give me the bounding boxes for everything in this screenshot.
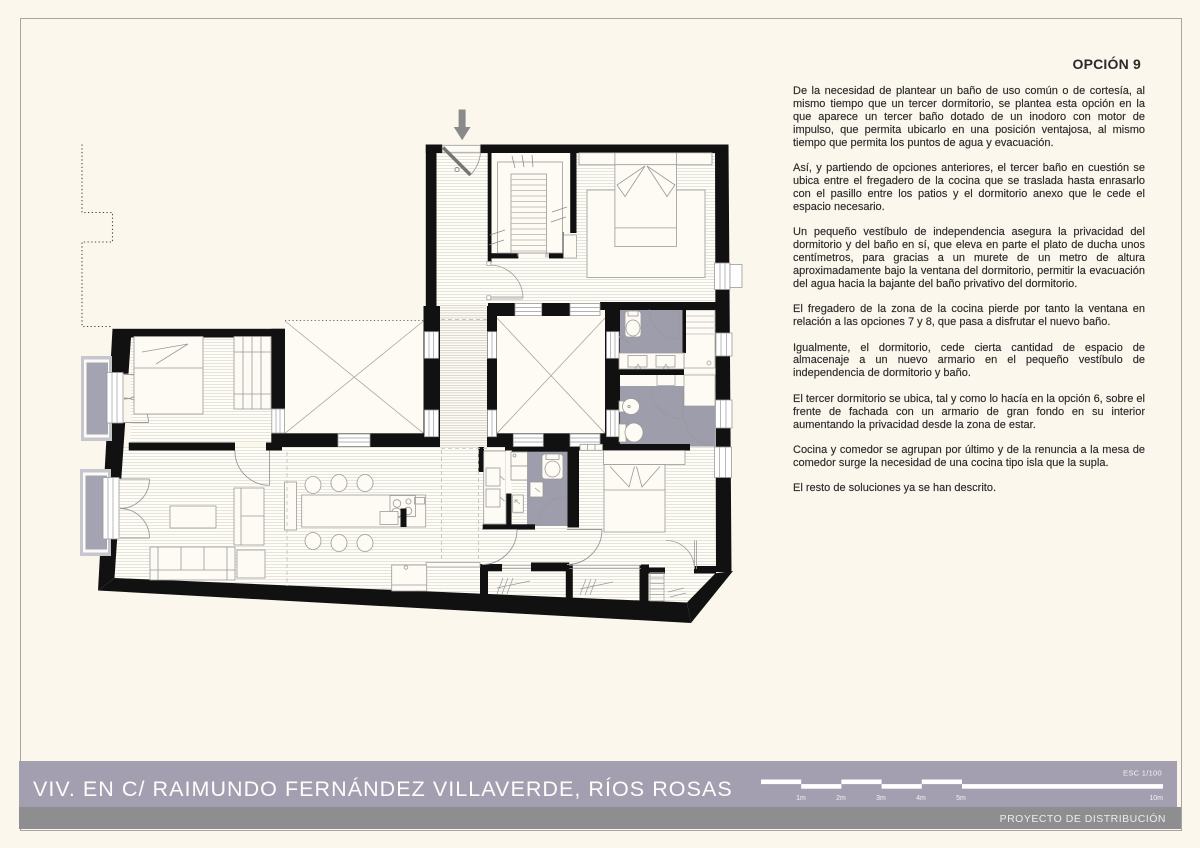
svg-text:5m: 5m — [956, 795, 966, 802]
svg-text:ESC 1/100: ESC 1/100 — [1123, 769, 1162, 778]
svg-text:4m: 4m — [916, 795, 926, 802]
svg-text:3m: 3m — [876, 795, 886, 802]
svg-text:2m: 2m — [836, 795, 846, 802]
svg-text:10m: 10m — [1149, 795, 1163, 802]
svg-text:1m: 1m — [796, 795, 806, 802]
